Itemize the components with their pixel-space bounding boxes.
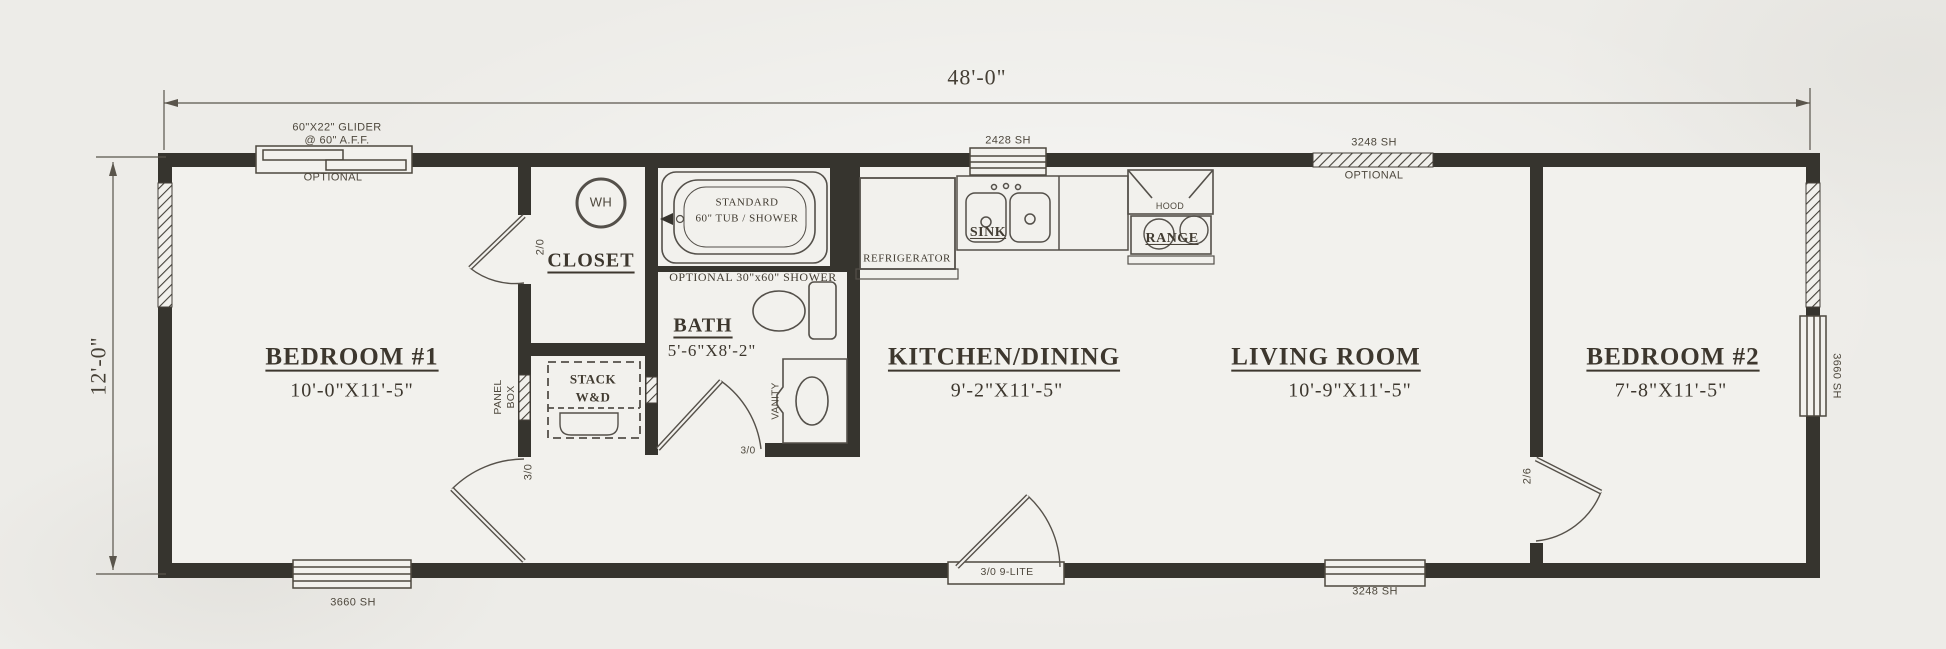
room-label-living: LIVING ROOM xyxy=(1231,344,1420,373)
window-3660-bottom-label: 3660 SH xyxy=(330,597,376,610)
glider-window-label-line1: 60"X22" GLIDER xyxy=(292,122,381,135)
window-hatch-top-optional xyxy=(1313,153,1433,167)
room-size-bedroom2: 7'-8"X11'-5" xyxy=(1615,380,1728,403)
wall-bath-east xyxy=(847,272,860,457)
window-3248-top-label: 3248 SH xyxy=(1351,137,1397,150)
glider-window-label-line2: @ 60" A.F.F. xyxy=(304,135,369,148)
scanned-floor-plan-page: { "overall": { "width_label": "48'-0\"",… xyxy=(0,0,1946,649)
door-label-2-6: 2/6 xyxy=(1522,468,1535,485)
window-3660-right-label: 3660 SH xyxy=(1830,353,1843,399)
hood-label: HOOD xyxy=(1156,201,1184,211)
bath-wall-vent-hatch xyxy=(646,377,657,403)
laundry-label-line2: W&D xyxy=(576,391,611,406)
laundry-label-line1: STACK xyxy=(570,373,616,388)
wall-closet-south xyxy=(531,343,658,356)
room-size-bedroom1: 10'-0"X11'-5" xyxy=(290,380,414,403)
sink-label: SINK xyxy=(970,225,1006,241)
wall-bedroom2-west-stub xyxy=(1530,543,1543,563)
window-3248-bottom-label: 3248 SH xyxy=(1352,586,1398,599)
wall-bedroom2-west xyxy=(1530,167,1543,457)
tub-label-line2: 60" TUB / SHOWER xyxy=(695,213,798,226)
door-label-3-0-bath: 3/0 xyxy=(740,445,755,457)
panel-box-label-line1: PANEL xyxy=(492,379,504,414)
floor-plan-drawing xyxy=(0,0,1946,649)
door-label-entry-9lite: 3/0 9-LITE xyxy=(980,566,1033,578)
door-label-3-0-bedroom1: 3/0 xyxy=(523,464,536,481)
optional-shower-note: OPTIONAL 30"x60" SHOWER xyxy=(669,271,837,285)
room-label-kitchen: KITCHEN/DINING xyxy=(888,344,1120,373)
window-2428-label: 2428 SH xyxy=(985,135,1031,148)
room-label-bedroom1: BEDROOM #1 xyxy=(265,344,438,373)
tub-label-line1: STANDARD xyxy=(715,197,778,210)
room-size-kitchen: 9'-2"X11'-5" xyxy=(951,380,1064,403)
overall-width-dimension: 48'-0" xyxy=(947,64,1006,89)
window-3660-bottom-symbol xyxy=(293,560,411,588)
refrigerator-label: REFRIGERATOR xyxy=(863,253,951,266)
room-label-bath: BATH xyxy=(673,315,732,338)
room-label-closet: CLOSET xyxy=(547,250,634,273)
wall-bath-south xyxy=(765,443,860,457)
water-heater-label: WH xyxy=(590,196,612,211)
room-label-bedroom2: BEDROOM #2 xyxy=(1586,344,1759,373)
window-hatch-left-wall xyxy=(158,183,172,307)
vanity-label: VANITY xyxy=(770,382,782,419)
panel-box-hatch xyxy=(519,375,530,420)
window-2428-symbol xyxy=(970,148,1046,175)
room-size-living: 10'-9"X11'-5" xyxy=(1288,380,1412,403)
range-label: RANGE xyxy=(1145,231,1198,247)
panel-box-label-line2: BOX xyxy=(505,385,517,408)
overall-height-dimension: 12'-0" xyxy=(85,336,110,395)
glider-window-optional-note: OPTIONAL xyxy=(304,172,363,185)
window-hatch-right-wall xyxy=(1806,183,1820,307)
glider-window-symbol xyxy=(256,146,412,173)
wall-bedroom1-east-mid xyxy=(518,284,531,457)
room-size-bath: 5'-6"X8'-2" xyxy=(668,341,757,361)
window-3660-right-symbol xyxy=(1800,316,1826,416)
window-3248-bottom-symbol xyxy=(1325,560,1425,586)
window-3248-optional-note: OPTIONAL xyxy=(1345,170,1404,183)
door-label-2-0: 2/0 xyxy=(535,239,548,256)
wall-bedroom1-east-upper xyxy=(518,167,531,215)
